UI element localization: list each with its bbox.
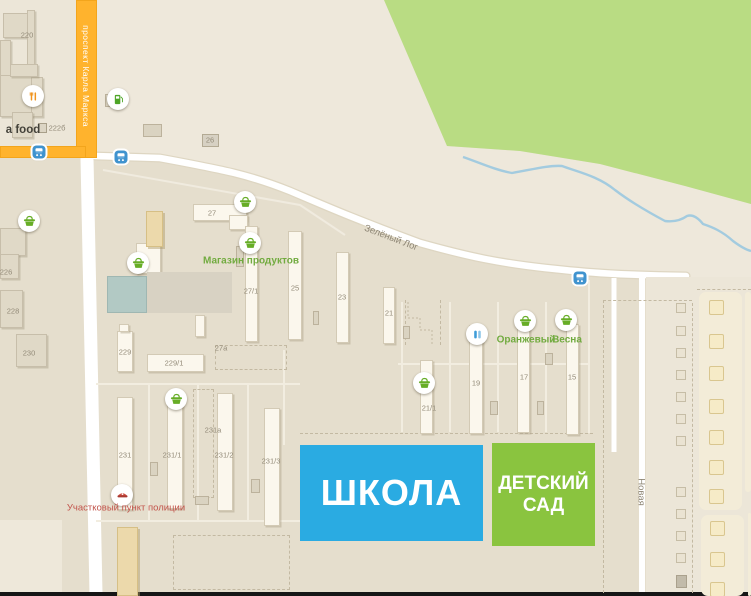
building-number-label: 231/1 [163,451,182,460]
poi-shop-label[interactable]: Оранжевый [497,335,556,346]
poi-police-label[interactable]: Участковый пункт полиции [67,503,185,514]
garage[interactable] [676,575,687,588]
garage-complex [745,292,751,492]
dashed-boundary [440,300,441,345]
garage[interactable] [676,436,686,446]
building[interactable] [537,401,544,415]
building-number-label: 27/1 [244,287,259,296]
garage[interactable] [676,553,686,563]
garage[interactable] [676,487,686,497]
building-number-label: 228 [7,307,20,316]
school-block[interactable]: ШКОЛА [300,445,483,541]
building[interactable] [264,408,280,526]
building-number-label: 23 [338,293,346,302]
building[interactable] [10,64,38,77]
kindergarten-label-line1: ДЕТСКИЙ [498,473,588,495]
garage[interactable] [709,300,724,315]
garage[interactable] [709,334,724,349]
garage[interactable] [676,414,686,424]
basket-icon[interactable] [234,191,256,213]
lot-line [148,385,150,520]
building-number-label: 231/3 [262,457,281,466]
kindergarten-block[interactable]: ДЕТСКИЙ САД [492,443,595,546]
lot-line [247,385,249,520]
river [463,157,751,251]
building[interactable] [146,211,163,247]
street-name-label: Зелёный Лог [363,223,420,254]
food-icon[interactable] [22,85,44,107]
bus-stop-icon[interactable] [33,146,46,159]
building[interactable] [251,479,260,493]
dashed-boundary [603,300,692,301]
garage[interactable] [676,348,686,358]
dashed-boundary [697,289,751,290]
kindergarten-label-line2: САД [523,495,564,517]
garage[interactable] [710,552,725,567]
garage[interactable] [709,489,724,504]
building-number-label: 26 [206,136,214,145]
light-area [95,0,751,277]
building-number-label: 25 [291,284,299,293]
building-number-label: 231 [119,451,132,460]
map-canvas[interactable]: ШКОЛА ДЕТСКИЙ САД 220222б226228230262727… [0,0,751,596]
dashed-boundary [300,433,593,434]
building-number-label: 27 [208,209,216,218]
building[interactable] [313,311,319,325]
block-shading [0,520,62,592]
garage[interactable] [676,370,686,380]
park-area [384,0,751,204]
building-number-label: 229 [119,348,132,357]
basket-icon[interactable] [514,310,536,332]
garage[interactable] [676,392,686,402]
garage[interactable] [709,460,724,475]
poi-shop-label[interactable]: Весна [552,335,582,346]
garage[interactable] [676,509,686,519]
building-number-label: 226 [0,268,12,277]
lot-line [545,302,547,432]
garage[interactable] [676,303,686,313]
garage[interactable] [676,326,686,336]
bottom-edge-bar [0,592,751,596]
building[interactable] [117,527,138,596]
garage[interactable] [710,582,725,596]
building-number-label: 19 [472,379,480,388]
building[interactable] [107,276,147,313]
building[interactable] [143,124,162,137]
poi-food-label[interactable]: a food [6,124,41,136]
building[interactable] [119,324,129,332]
lot-line [449,302,451,432]
bus-stop-icon[interactable] [574,272,587,285]
building-number-label: 222б [49,124,66,133]
building-number-label: 231а [205,426,222,435]
poi-shop-label[interactable]: Магазин продуктов [203,256,299,267]
building-number-label: 220 [21,31,34,40]
basket-icon[interactable] [18,210,40,232]
building[interactable] [0,228,26,256]
building-number-label: 231/2 [215,451,234,460]
building-number-label: 15 [568,373,576,382]
road-karl-marx-south [87,158,96,594]
building[interactable] [195,496,209,505]
building[interactable] [545,353,553,365]
building-number-label: 230 [23,349,36,358]
street-name-label: проспект Карла Маркса [81,25,91,127]
basket-icon[interactable] [239,232,261,254]
garage[interactable] [710,521,725,536]
dashed-boundary [603,300,604,593]
building-number-label: 17 [520,373,528,382]
road-zeleny-log [95,156,686,276]
bluepoi-icon[interactable] [466,323,488,345]
dashed-boundary [193,389,214,498]
lot-line [588,280,590,433]
school-label: ШКОЛА [321,472,463,514]
basket-icon[interactable] [413,372,435,394]
dashed-boundary [692,303,693,593]
building[interactable] [403,326,410,339]
building-number-label: 21 [385,309,393,318]
building-number-label: 27а [215,344,228,353]
building[interactable] [195,315,205,337]
basket-icon[interactable] [127,252,149,274]
building-number-label: 21/1 [422,404,437,413]
building-number-label: 229/1 [165,359,184,368]
basket-icon[interactable] [165,388,187,410]
garage[interactable] [709,399,724,414]
garage[interactable] [676,531,686,541]
street-name-label: Новая [636,478,647,506]
basket-icon[interactable] [555,309,577,331]
garage[interactable] [709,430,724,445]
fuel-icon[interactable] [107,88,129,110]
building[interactable] [150,462,158,476]
bus-stop-icon[interactable] [115,151,128,164]
dashed-boundary [173,535,290,590]
building[interactable] [147,272,232,313]
lot-line [401,302,403,432]
garage[interactable] [709,366,724,381]
building[interactable] [490,401,498,415]
